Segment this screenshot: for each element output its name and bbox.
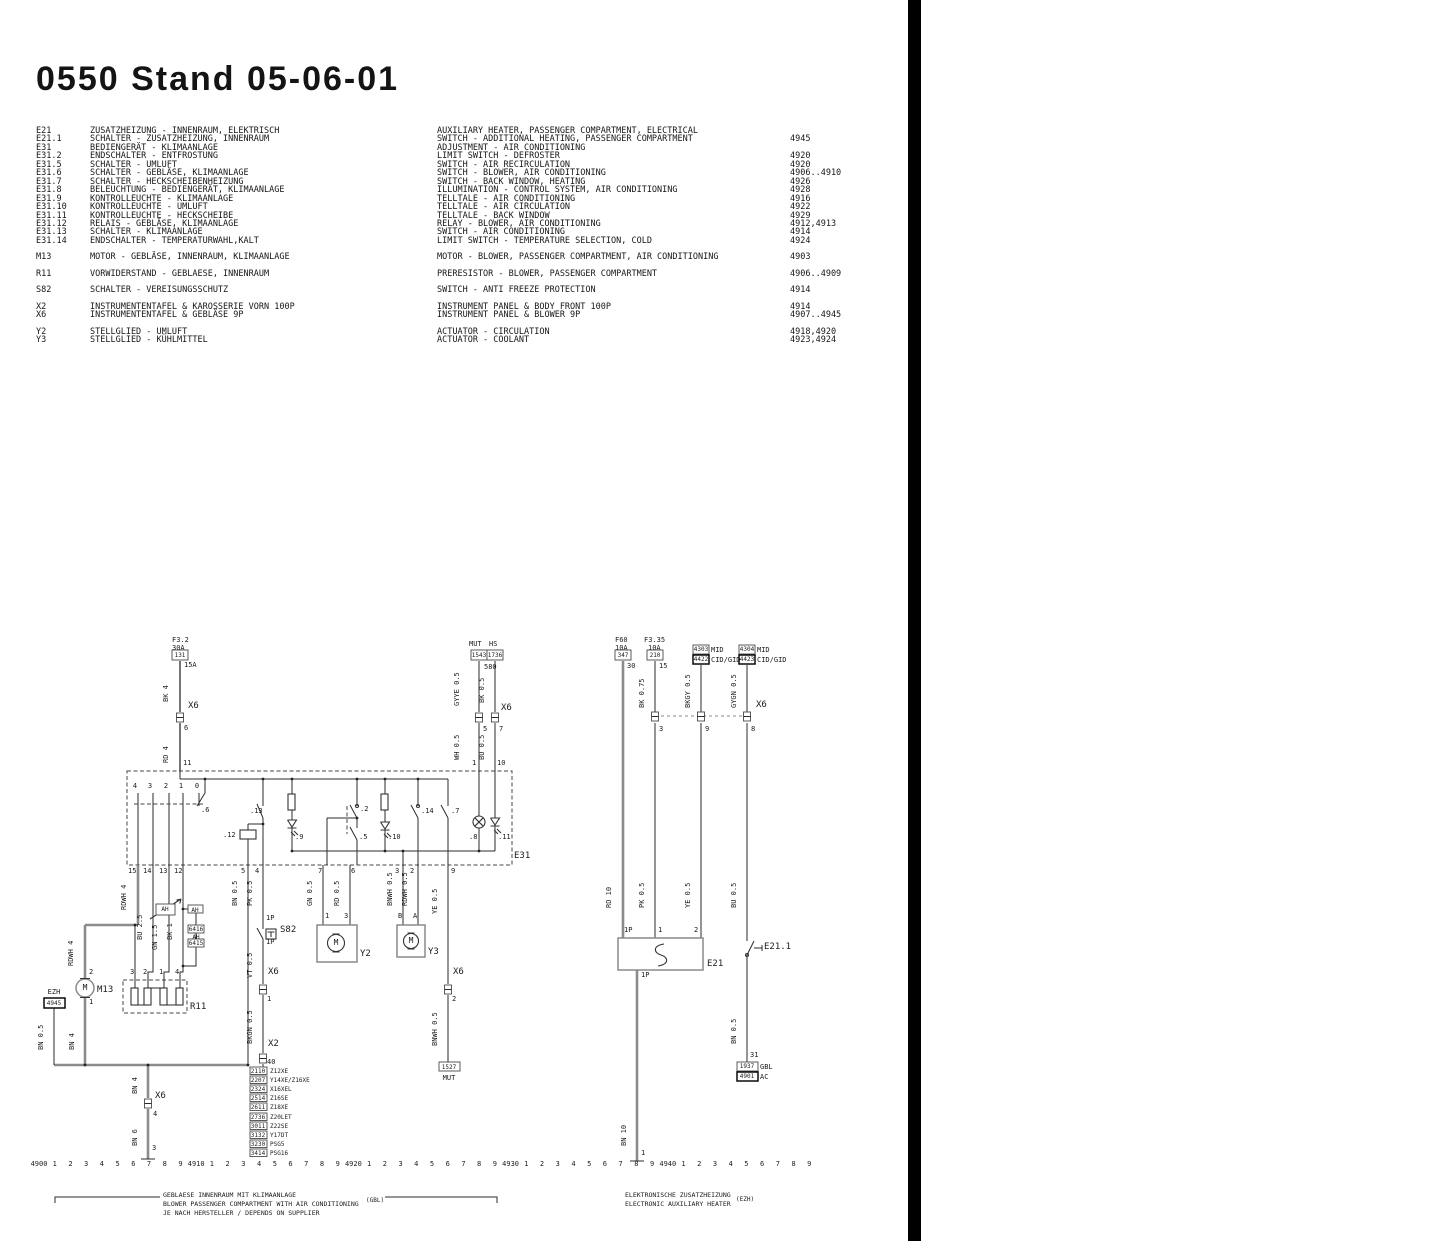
wire-bnwh-05: BNWH 0.5 xyxy=(431,1012,439,1046)
pin-7: 7 xyxy=(318,867,322,875)
pin-1: 1 xyxy=(472,759,476,767)
eng-ref: 3132 xyxy=(251,1132,265,1140)
component-m13-label: M13 xyxy=(97,986,113,994)
component-y2-label: Y2 xyxy=(360,950,371,958)
wire-rdwh-4: RDWH 4 xyxy=(67,941,75,966)
pin-1: 1 xyxy=(658,926,662,934)
note-left-de: GEBLAESE INNENRAUM MIT KLIMAANLAGE xyxy=(163,1191,296,1199)
eng-ref: 3414 xyxy=(251,1150,265,1158)
pin-10: 10 xyxy=(497,759,505,767)
scale-tick: 4 xyxy=(729,1160,733,1168)
connector-x2-label: X2 xyxy=(268,1040,279,1048)
ref-4945: 4945 xyxy=(47,1000,61,1008)
wire-bn-05: BN 0.5 xyxy=(730,1019,738,1044)
terminal-15a: 15A xyxy=(184,661,197,669)
eng-ref: 2110 xyxy=(251,1068,265,1076)
wire-bu-05: BU 0.5 xyxy=(478,735,486,760)
pin-3: 3 xyxy=(344,912,348,920)
scale-tick: 5 xyxy=(273,1160,277,1168)
eng-ref: 2324 xyxy=(251,1086,265,1094)
component-e211-label: E21.1 xyxy=(764,943,791,951)
pin-2: 2 xyxy=(143,968,147,976)
pin-40: 40 xyxy=(267,1058,275,1066)
rotary-pos-3: 3 xyxy=(148,782,152,790)
pin-9: 9 xyxy=(451,867,455,875)
ref-6416: 6416 xyxy=(189,926,203,934)
ground-1: 1 xyxy=(641,1149,645,1157)
connector-x6-label: X6 xyxy=(155,1092,166,1100)
sub-6: .6 xyxy=(201,806,209,814)
src-hs: HS xyxy=(489,640,497,648)
diagram-labels-layer: F3.230A13115ABK 4X66RD 411MUTHS154317365… xyxy=(0,0,1440,1241)
scale-tick: 3 xyxy=(556,1160,560,1168)
wire-bk-05: BK 0.5 xyxy=(478,678,486,703)
ref-210: 210 xyxy=(650,652,661,660)
pin-12: 12 xyxy=(174,867,182,875)
wire-rdwh-05: RDWH 0.5 xyxy=(401,872,409,906)
rotary-pos-1: 1 xyxy=(179,782,183,790)
motor-m: M xyxy=(334,939,339,947)
pin-4: 4 xyxy=(153,1110,157,1118)
pin-4: 4 xyxy=(175,968,179,976)
note-right-code: (EZH) xyxy=(736,1196,754,1204)
ref-4901: 4901 xyxy=(740,1073,754,1081)
wire-bn-6: BN 6 xyxy=(131,1129,139,1146)
ref-4303: 4303 xyxy=(694,646,708,654)
connector-x6-label: X6 xyxy=(756,701,767,709)
wire-gyye-05: GYYE 0.5 xyxy=(453,672,461,706)
wire-bkgn-05: BKGN 0.5 xyxy=(246,1010,254,1044)
ref-1527: 1527 xyxy=(442,1064,456,1072)
ref-4901-note: AC xyxy=(760,1073,768,1081)
pin-6: 6 xyxy=(351,867,355,875)
pin-3: 3 xyxy=(395,867,399,875)
sub-5: .5 xyxy=(359,833,367,841)
scale-decade: 4940 xyxy=(659,1160,676,1168)
scale-tick: 8 xyxy=(163,1160,167,1168)
pin-5: 5 xyxy=(241,867,245,875)
wire-pk-05: PK 0.5 xyxy=(638,883,646,908)
eng-name: Z20LET xyxy=(270,1114,292,1122)
note-right-de: ELEKTRONISCHE ZUSATZHEIZUNG xyxy=(625,1191,731,1199)
wire-bu-05: BU 0.5 xyxy=(730,883,738,908)
scale-tick: 1 xyxy=(367,1160,371,1168)
pin-1: 1 xyxy=(159,968,163,976)
sub-7: .7 xyxy=(451,807,459,815)
pin-1: 1 xyxy=(267,995,271,1003)
eng-ref: 2736 xyxy=(251,1114,265,1122)
connector-x6-label: X6 xyxy=(188,702,199,710)
ref-1527-note: MUT xyxy=(443,1074,456,1082)
scale-tick: 5 xyxy=(115,1160,119,1168)
note-left-supplier: JE NACH HERSTELLER / DEPENDS ON SUPPLIER xyxy=(163,1209,320,1217)
ref-4304-note: MID xyxy=(757,646,770,654)
connector-x6-label: X6 xyxy=(453,968,464,976)
scale-tick: 1 xyxy=(681,1160,685,1168)
pin-9: 9 xyxy=(705,725,709,733)
fuse-f335-id: F3.35 xyxy=(644,636,665,644)
scale-tick: 2 xyxy=(226,1160,230,1168)
scale-tick: 9 xyxy=(650,1160,654,1168)
scale-tick: 4 xyxy=(257,1160,261,1168)
pin-1: 1 xyxy=(325,912,329,920)
ref-1543: 1543 xyxy=(472,652,486,660)
wire-rd-4: RD 4 xyxy=(162,746,170,763)
scale-tick: 1 xyxy=(53,1160,57,1168)
scale-tick: 8 xyxy=(477,1160,481,1168)
ref-4423: 4423 xyxy=(740,656,754,664)
eng-name: Z12XE xyxy=(270,1068,288,1076)
fuse-f32-rating: 30A xyxy=(172,644,185,652)
pin-3: 3 xyxy=(659,725,663,733)
scale-tick: 2 xyxy=(68,1160,72,1168)
eng-ref: 2207 xyxy=(251,1077,265,1085)
ref-347: 347 xyxy=(618,652,629,660)
scale-tick: 6 xyxy=(288,1160,292,1168)
wire-bk-1: BK 1 xyxy=(166,923,174,940)
pin-15: 15 xyxy=(128,867,136,875)
scale-decade: 4920 xyxy=(345,1160,362,1168)
eng-ref: 2611 xyxy=(251,1104,265,1112)
scale-tick: 7 xyxy=(619,1160,623,1168)
pin-1p: 1P xyxy=(266,914,274,922)
wire-gygn-05: GYGN 0.5 xyxy=(730,674,738,708)
scale-tick: 5 xyxy=(430,1160,434,1168)
ref-ah-2: AH xyxy=(191,907,198,915)
scale-tick: 8 xyxy=(634,1160,638,1168)
ref-ah-1: AH xyxy=(161,906,168,914)
sub-2: .2 xyxy=(360,805,368,813)
ref-580: 580 xyxy=(484,663,497,671)
eng-ref: 3230 xyxy=(251,1141,265,1149)
sub-9: .9 xyxy=(295,833,303,841)
wire-bn-4: BN 4 xyxy=(68,1033,76,1050)
pin-2: 2 xyxy=(452,995,456,1003)
scale-tick: 3 xyxy=(713,1160,717,1168)
note-right-en: ELECTRONIC AUXILIARY HEATER xyxy=(625,1200,731,1208)
eng-name: PSG16 xyxy=(270,1150,288,1158)
wire-wh-05: WH 0.5 xyxy=(453,735,461,760)
pin-6: 6 xyxy=(184,724,188,732)
scale-tick: 7 xyxy=(776,1160,780,1168)
ref-1937: 1937 xyxy=(740,1063,754,1071)
component-e31-label: E31 xyxy=(514,852,530,860)
scale-tick: 4 xyxy=(571,1160,575,1168)
pin-2: 2 xyxy=(410,867,414,875)
scale-tick: 1 xyxy=(524,1160,528,1168)
wire-pk-05: PK 0.5 xyxy=(246,881,254,906)
eng-ref: 2514 xyxy=(251,1095,265,1103)
wire-bk-4: BK 4 xyxy=(162,685,170,702)
scale-tick: 9 xyxy=(807,1160,811,1168)
scale-tick: 3 xyxy=(241,1160,245,1168)
pin-13: 13 xyxy=(159,867,167,875)
wire-gn-05: GN 0.5 xyxy=(306,881,314,906)
wire-ye-05: YE 0.5 xyxy=(684,883,692,908)
wire-bn-05: BN 0.5 xyxy=(231,881,239,906)
ref-131: 131 xyxy=(175,652,186,660)
ref-1736: 1736 xyxy=(488,652,502,660)
ref-4303-note: MID xyxy=(711,646,724,654)
scale-tick: 6 xyxy=(446,1160,450,1168)
scale-tick: 1 xyxy=(210,1160,214,1168)
scale-decade: 4910 xyxy=(188,1160,205,1168)
scale-decade: 4930 xyxy=(502,1160,519,1168)
pin-11: 11 xyxy=(183,759,191,767)
wire-rdwh-4: RDWH 4 xyxy=(120,885,128,910)
wire-bu-25: BU 2.5 xyxy=(136,915,144,940)
pin-14: 14 xyxy=(143,867,151,875)
fuse-f60-rating: 10A xyxy=(615,644,628,652)
fuse-f32-id: F3.2 xyxy=(172,636,189,644)
scale-tick: 6 xyxy=(131,1160,135,1168)
rotary-pos-4: 4 xyxy=(133,782,137,790)
terminal-30: 30 xyxy=(627,662,635,670)
scale-tick: 6 xyxy=(760,1160,764,1168)
wire-ye-05: YE 0.5 xyxy=(431,889,439,914)
wire-bn-10: BN 10 xyxy=(620,1125,628,1146)
scale-tick: 7 xyxy=(461,1160,465,1168)
scale-tick: 9 xyxy=(178,1160,182,1168)
component-s82-label: S82 xyxy=(280,926,296,934)
wire-vt-05: VT 0.5 xyxy=(246,953,254,978)
scale-tick: 8 xyxy=(320,1160,324,1168)
wire-rd-05: RD 0.5 xyxy=(333,881,341,906)
sub-13: .13 xyxy=(250,807,263,815)
component-e21-label: E21 xyxy=(707,960,723,968)
connector-x6-label: X6 xyxy=(268,968,279,976)
sub-10: .10 xyxy=(388,833,401,841)
scale-tick: 3 xyxy=(398,1160,402,1168)
circuit-diagram: F3.230A13115ABK 4X66RD 411MUTHS154317365… xyxy=(0,0,1440,1241)
ground-3: 3 xyxy=(152,1144,156,1152)
note-left-en: BLOWER PASSENGER COMPARTMENT WITH AIR CO… xyxy=(163,1200,359,1208)
pin-2: 2 xyxy=(694,926,698,934)
pin-7: 7 xyxy=(499,725,503,733)
pin-1: 1 xyxy=(89,998,93,1006)
pin-2: 2 xyxy=(89,968,93,976)
pin-5: 5 xyxy=(483,725,487,733)
wire-rd-10: RD 10 xyxy=(605,887,613,908)
eng-name: Z22SE xyxy=(270,1123,288,1131)
scale-tick: 6 xyxy=(603,1160,607,1168)
src-mut: MUT xyxy=(469,640,482,648)
scale-tick: 7 xyxy=(304,1160,308,1168)
fuse-f335-rating: 10A xyxy=(648,644,661,652)
ref-6415: 6415 xyxy=(189,940,203,948)
scale-tick: 5 xyxy=(587,1160,591,1168)
eng-name: X16XEL xyxy=(270,1086,292,1094)
eng-name: Y17DT xyxy=(270,1132,288,1140)
page-edge-bar xyxy=(908,0,921,1241)
wiring-diagram-page: 0550 Stand 05-06-01 E21ZUSATZHEIZUNG - I… xyxy=(0,0,1440,1241)
pin-3: 3 xyxy=(130,968,134,976)
note-left-code: (GBL) xyxy=(366,1197,384,1205)
motor-m: M xyxy=(83,984,88,992)
wire-bn-4: BN 4 xyxy=(131,1077,139,1094)
scale-tick: 4 xyxy=(414,1160,418,1168)
scale-tick: 4 xyxy=(100,1160,104,1168)
component-y3-label: Y3 xyxy=(428,948,439,956)
scale-tick: 2 xyxy=(540,1160,544,1168)
eng-ref: 3011 xyxy=(251,1123,265,1131)
motor-m: M xyxy=(409,937,414,945)
component-r11-label: R11 xyxy=(190,1003,206,1011)
scale-tick: 2 xyxy=(383,1160,387,1168)
sub-11: .11 xyxy=(498,833,511,841)
ref-ezh: EZH xyxy=(48,988,61,996)
wire-bnwh-05: BNWH 0.5 xyxy=(386,872,394,906)
eng-name: Z16SE xyxy=(270,1095,288,1103)
sub-14: .14 xyxy=(421,807,434,815)
terminal-15: 15 xyxy=(659,662,667,670)
sub-8: .8 xyxy=(469,833,477,841)
pin-1p: 1P xyxy=(641,971,649,979)
terminal-31: 31 xyxy=(750,1051,758,1059)
ref-4423-note: CID/GID xyxy=(757,656,787,664)
eng-name: Z18XE xyxy=(270,1104,288,1112)
scale-tick: 2 xyxy=(697,1160,701,1168)
ref-1937-note: GBL xyxy=(760,1063,773,1071)
rotary-pos-0: 0 xyxy=(195,782,199,790)
wire-gn-15: GN 1.5 xyxy=(151,925,159,950)
pin-b: B xyxy=(398,912,402,920)
pin-1p: 1P xyxy=(624,926,632,934)
rotary-pos-2: 2 xyxy=(164,782,168,790)
fuse-f60-id: F60 xyxy=(615,636,628,644)
scale-tick: 7 xyxy=(147,1160,151,1168)
scale-tick: 9 xyxy=(336,1160,340,1168)
eng-name: Y14XE/Z16XE xyxy=(270,1077,310,1085)
ref-4422: 4422 xyxy=(694,656,708,664)
scale-decade: 4900 xyxy=(31,1160,48,1168)
pin-1p: 1P xyxy=(266,938,274,946)
wire-bk-075: BK 0.75 xyxy=(638,678,646,708)
eng-name: PSG5 xyxy=(270,1141,284,1149)
pin-8: 8 xyxy=(751,725,755,733)
scale-tick: 5 xyxy=(744,1160,748,1168)
connector-x6-label: X6 xyxy=(501,704,512,712)
ref-4304: 4304 xyxy=(740,646,754,654)
scale-tick: 8 xyxy=(791,1160,795,1168)
pin-a: A xyxy=(413,912,417,920)
ref-4422-note: CID/GID xyxy=(711,656,741,664)
wire-bn-05: BN 0.5 xyxy=(37,1025,45,1050)
scale-tick: 3 xyxy=(84,1160,88,1168)
pin-4: 4 xyxy=(255,867,259,875)
scale-tick: 9 xyxy=(493,1160,497,1168)
wire-bkgy-05: BKGY 0.5 xyxy=(684,674,692,708)
sub-12: .12 xyxy=(223,831,236,839)
